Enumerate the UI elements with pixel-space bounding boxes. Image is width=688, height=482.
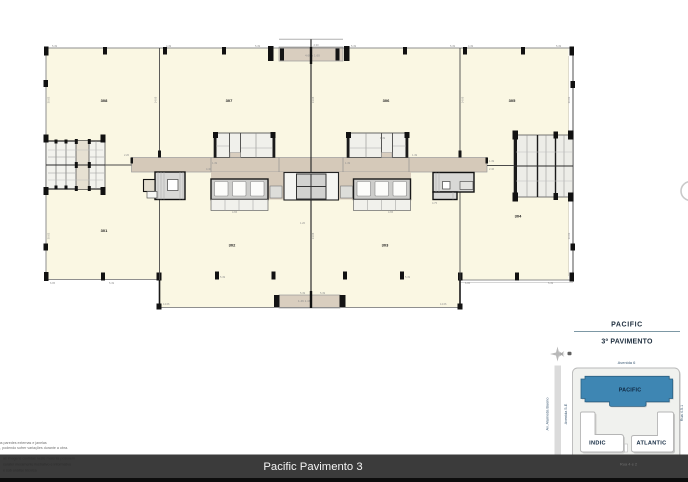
- svg-text:30.63: 30.63: [47, 232, 51, 239]
- svg-text:5.49: 5.49: [220, 275, 226, 279]
- svg-text:1.46 1.46: 1.46 1.46: [298, 299, 311, 303]
- svg-text:302: 302: [229, 243, 236, 248]
- svg-text:30.63: 30.63: [47, 96, 51, 103]
- svg-text:ATLANTIC: ATLANTIC: [637, 441, 667, 447]
- svg-text:14.06: 14.06: [440, 302, 447, 306]
- svg-text:Rua 4.5.1: Rua 4.5.1: [680, 405, 684, 421]
- svg-text:30.63: 30.63: [567, 96, 571, 103]
- svg-text:14.06: 14.06: [163, 302, 170, 306]
- svg-text:Avenida 5-E: Avenida 5-E: [564, 403, 568, 424]
- svg-text:303: 303: [382, 243, 389, 248]
- svg-text:PACIFIC: PACIFIC: [611, 322, 643, 329]
- svg-text:PACIFIC: PACIFIC: [619, 388, 642, 394]
- svg-text:14.06: 14.06: [154, 96, 158, 103]
- svg-text:INDIC: INDIC: [589, 441, 606, 447]
- svg-text:3º PAVIMENTO: 3º PAVIMENTO: [601, 339, 653, 346]
- svg-text:medidas a partir das paredes e: medidas a partir das paredes externas e …: [0, 441, 47, 445]
- svg-text:5.49: 5.49: [300, 291, 306, 295]
- svg-text:5.49: 5.49: [109, 281, 115, 285]
- svg-text:305: 305: [509, 98, 516, 103]
- svg-text:2.20: 2.20: [124, 153, 130, 157]
- svg-text:5.49: 5.49: [405, 275, 411, 279]
- svg-text:1.49: 1.49: [412, 153, 418, 157]
- svg-text:307: 307: [226, 98, 233, 103]
- svg-text:6.95: 6.95: [50, 281, 56, 285]
- svg-text:5.49: 5.49: [320, 291, 326, 295]
- svg-text:Av. Alameda Bueno: Av. Alameda Bueno: [546, 398, 550, 431]
- svg-text:308: 308: [101, 98, 108, 103]
- svg-text:4.40: 4.40: [206, 167, 212, 171]
- svg-text:4.65: 4.65: [388, 210, 394, 214]
- svg-text:4.60 x 1.60: 4.60 x 1.60: [305, 54, 320, 58]
- svg-text:5.49: 5.49: [351, 44, 357, 48]
- svg-text:1.49: 1.49: [489, 159, 495, 163]
- svg-text:1.49: 1.49: [212, 161, 218, 165]
- svg-text:e sob análise técnica: e sob análise técnica: [3, 469, 37, 473]
- svg-text:304: 304: [515, 214, 522, 219]
- svg-text:5.49: 5.49: [52, 44, 58, 48]
- svg-text:1.20: 1.20: [300, 221, 306, 225]
- svg-text:cotas aproximadas, podendo sof: cotas aproximadas, podendo sofrer variaç…: [0, 446, 68, 450]
- svg-text:5.49: 5.49: [548, 281, 554, 285]
- svg-text:4.75: 4.75: [432, 201, 438, 205]
- svg-text:Avenida 6: Avenida 6: [618, 360, 636, 365]
- svg-text:2.46: 2.46: [489, 167, 495, 171]
- svg-text:14.06: 14.06: [311, 232, 315, 239]
- svg-text:5.49: 5.49: [450, 44, 456, 48]
- svg-text:6.95: 6.95: [465, 281, 471, 285]
- svg-text:14.06: 14.06: [311, 96, 315, 103]
- svg-text:caráter meramente ilustrativo: caráter meramente ilustrativo e informat…: [3, 463, 71, 467]
- svg-text:as imagens contidas neste mate: as imagens contidas neste material possu…: [3, 457, 75, 461]
- svg-text:Pacific Pavimento 3: Pacific Pavimento 3: [263, 461, 362, 473]
- svg-text:5.49: 5.49: [556, 44, 562, 48]
- svg-text:306: 306: [383, 98, 390, 103]
- svg-text:4.49: 4.49: [166, 44, 172, 48]
- svg-text:14.06: 14.06: [461, 96, 465, 103]
- svg-text:1.49: 1.49: [380, 136, 386, 140]
- svg-text:Rua 4 e 2: Rua 4 e 2: [620, 462, 638, 467]
- svg-text:30.63: 30.63: [567, 232, 571, 239]
- svg-text:4.65: 4.65: [232, 210, 238, 214]
- svg-text:1.49: 1.49: [345, 161, 351, 165]
- svg-text:4.49: 4.49: [468, 44, 474, 48]
- svg-text:5.49: 5.49: [255, 44, 261, 48]
- svg-text:2.30: 2.30: [314, 43, 320, 47]
- svg-text:301: 301: [101, 228, 108, 233]
